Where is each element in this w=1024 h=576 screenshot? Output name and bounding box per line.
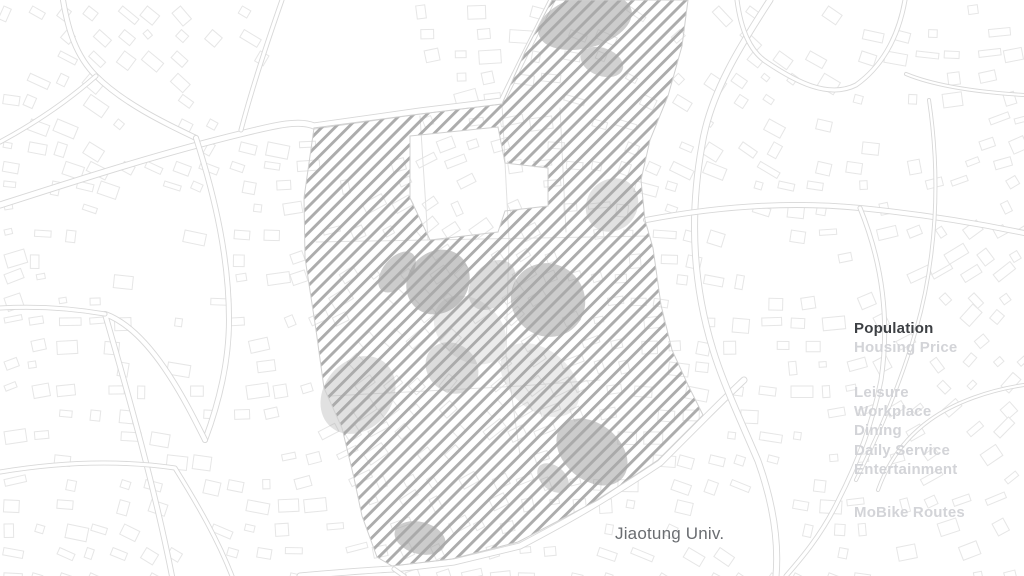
menu-item-workplace[interactable]: Workplace: [854, 403, 931, 420]
highlighted-region: [304, 0, 703, 566]
menu-item-mobike-routes[interactable]: MoBike Routes: [854, 504, 965, 521]
menu-item-population[interactable]: Population: [854, 320, 934, 337]
menu-item-entertainment[interactable]: Entertainment: [854, 461, 957, 478]
menu-item-leisure[interactable]: Leisure: [854, 384, 909, 401]
menu-item-daily-service[interactable]: Daily Service: [854, 442, 950, 459]
menu-item-dining[interactable]: Dining: [854, 422, 902, 439]
map-canvas[interactable]: [0, 0, 1024, 576]
map-app: Jiaotung Univ. Population Housing Price …: [0, 0, 1024, 576]
map-label-jiaotung-univ: Jiaotung Univ.: [615, 524, 724, 544]
menu-item-housing-price[interactable]: Housing Price: [854, 339, 957, 356]
